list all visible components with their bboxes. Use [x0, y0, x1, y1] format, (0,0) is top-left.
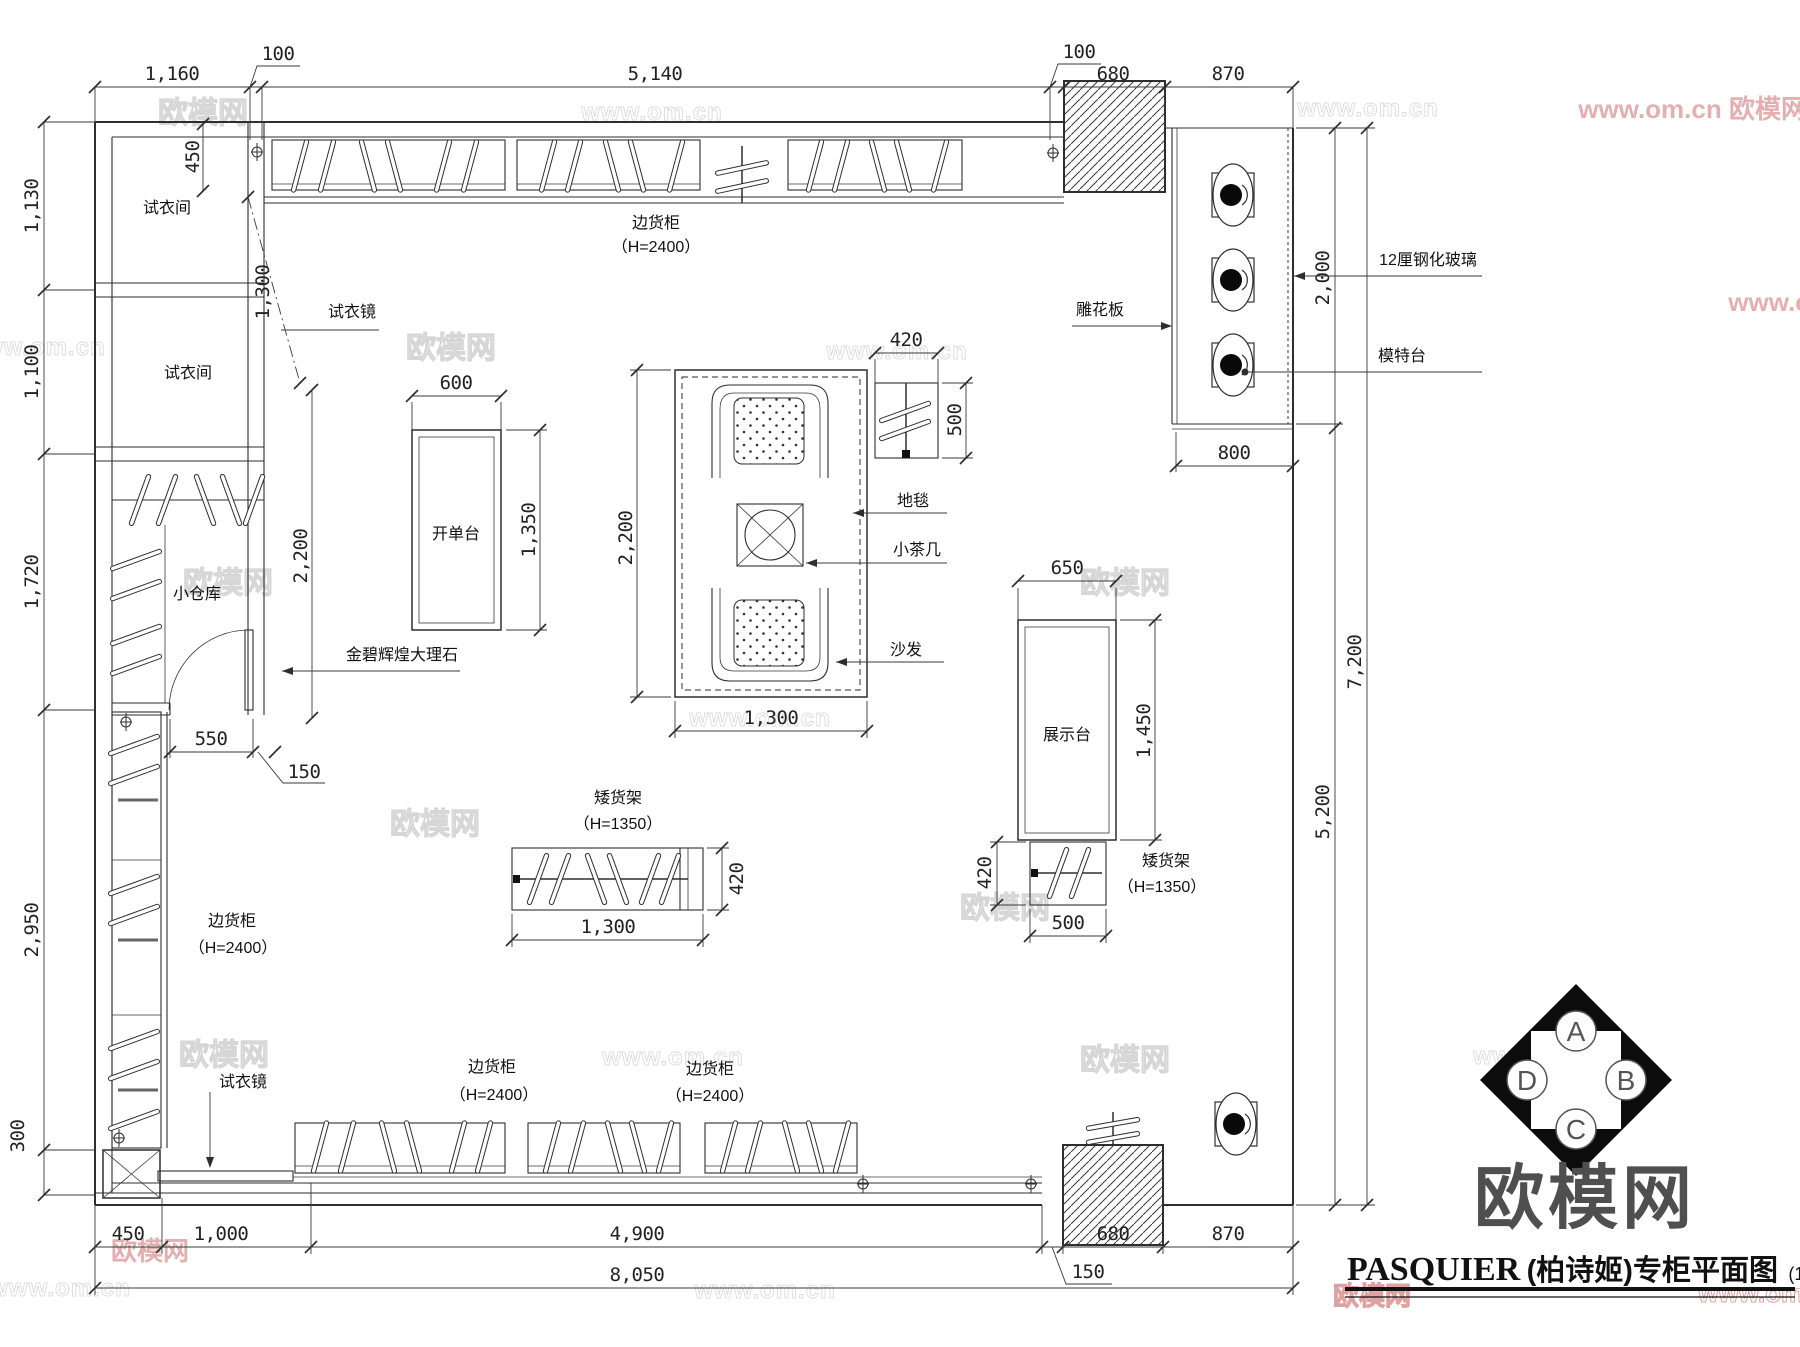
watermark-url: www.om.cn	[693, 1277, 835, 1304]
dim-800: 800	[1218, 442, 1251, 464]
dim-bottom-8050: 8,050	[610, 1264, 665, 1286]
title-brand: PASQUIER	[1347, 1251, 1521, 1288]
title-block: 欧模网 PASQUIER (柏诗姬)专柜平面图 (1:50)	[1345, 1159, 1800, 1297]
dim-500-rack: 500	[944, 404, 966, 437]
dim-left-1100: 1,100	[21, 345, 43, 400]
dim-top-5140: 5,140	[628, 63, 683, 85]
left-side-cabinet	[108, 712, 167, 1148]
low-shelf-center	[512, 848, 703, 910]
floor-plan-canvas: 欧模网 欧模网 欧模网 欧模网 欧模网 欧模网 欧模网 欧模网 www.om.c…	[0, 0, 1800, 1347]
label-carpet: 地毯	[897, 492, 929, 510]
mannequin-icon	[1215, 1093, 1257, 1155]
fitting-mirror-strip	[158, 1171, 293, 1181]
watermark-site-red: 欧模网	[1729, 94, 1800, 124]
watermark-site: 欧模网	[960, 892, 1050, 925]
dim-bottom-450: 450	[112, 1223, 145, 1245]
dim-left-2950: 2,950	[21, 903, 43, 958]
labels: 试衣间 试衣间 小仓库 试衣镜 边货柜 （H=2400） 边货柜 （H=2400…	[143, 199, 1482, 1168]
label-tempered-glass: 12厘钢化玻璃	[1379, 251, 1477, 269]
storage-door	[169, 630, 253, 710]
dimensions: 1,160 100 5,140 100 680 870 1,130 1,100 …	[7, 41, 1375, 1295]
dim-1300-carpet: 1,300	[744, 707, 799, 729]
dim-450: 450	[182, 141, 204, 174]
title-underline-thick	[1345, 1287, 1795, 1291]
site-logo: 欧模网	[1474, 1159, 1696, 1237]
dim-bottom-680: 680	[1097, 1223, 1130, 1245]
dim-2200-sofa: 2,200	[615, 511, 637, 566]
dim-right-7200: 7,200	[1344, 635, 1366, 690]
watermark-url: www.om.cn	[0, 334, 106, 361]
dim-right-5200: 5,200	[1312, 785, 1334, 840]
hanger-bars-icon	[291, 139, 949, 192]
compass-c: C	[1566, 1114, 1586, 1145]
dim-420-center: 420	[726, 863, 748, 896]
dim-420-right: 420	[974, 857, 996, 890]
title-name: (柏诗姬)专柜平面图	[1527, 1254, 1778, 1287]
dim-bottom-870: 870	[1212, 1223, 1245, 1245]
label-display-stand: 展示台	[1043, 726, 1091, 744]
label-low-shelf-right: 矮货架	[1142, 852, 1190, 870]
dim-top-100b: 100	[1063, 41, 1096, 63]
label-bottom-cabinet-1: 边货柜	[468, 1058, 516, 1076]
dim-right-2000: 2,000	[1312, 251, 1334, 306]
label-fitting-mirror-top: 试衣镜	[328, 302, 376, 321]
free-hanger-icon	[715, 146, 769, 203]
watermark-url-red: www.om.cn	[1577, 94, 1722, 124]
compass-b: B	[1617, 1065, 1636, 1096]
dim-bottom-1000: 1,000	[194, 1223, 249, 1245]
sofa-bottom	[712, 588, 828, 681]
dim-left-1720: 1,720	[21, 555, 43, 610]
title-scale: (1:50)	[1788, 1264, 1800, 1284]
label-left-cabinet: 边货柜	[208, 912, 256, 930]
walls	[95, 122, 1293, 1205]
label-fitting-room-2: 试衣间	[164, 364, 212, 382]
top-side-cabinet	[264, 139, 1064, 203]
tea-table	[737, 504, 803, 566]
mannequin-icon	[1212, 164, 1254, 226]
dim-550: 550	[195, 728, 228, 750]
dim-bottom-150: 150	[1072, 1261, 1105, 1283]
label-left-cabinet-h: （H=2400）	[189, 939, 278, 957]
dim-150: 150	[288, 761, 321, 783]
dim-1350: 1,350	[518, 503, 540, 558]
label-model-stand: 模特台	[1378, 347, 1426, 365]
watermark-site: 欧模网	[390, 808, 480, 841]
watermark-site: 欧模网	[1080, 1044, 1170, 1077]
dim-top-870: 870	[1212, 63, 1245, 85]
label-low-shelf-center: 矮货架	[594, 789, 642, 807]
label-fitting-room-1: 试衣间	[143, 199, 191, 217]
bottom-side-cabinet	[103, 1120, 1042, 1198]
dim-top-100: 100	[262, 43, 295, 65]
label-order-desk: 开单台	[432, 525, 480, 543]
label-sofa: 沙发	[890, 641, 922, 659]
watermark-url: www.om.cn	[1296, 95, 1438, 122]
label-top-cabinet: 边货柜	[632, 214, 680, 232]
label-tea-table: 小茶几	[893, 541, 941, 559]
label-low-shelf-right-h: （H=1350）	[1118, 878, 1207, 896]
compass-a: A	[1567, 1016, 1586, 1047]
label-bottom-cabinet-2: 边货柜	[686, 1060, 734, 1078]
dim-bottom-4900: 4,900	[610, 1223, 665, 1245]
label-marble: 金碧辉煌大理石	[346, 646, 458, 664]
dim-top-1160: 1,160	[145, 63, 200, 85]
dim-500-right: 500	[1052, 912, 1085, 934]
mannequin-icon	[1212, 249, 1254, 311]
dim-mirror-1300: 1,300	[252, 265, 274, 320]
label-bottom-cabinet-1-h: （H=2400）	[450, 1086, 539, 1104]
dim-2200-left: 2,200	[290, 529, 312, 584]
dim-top-680: 680	[1097, 63, 1130, 85]
dim-left-300: 300	[7, 1120, 29, 1153]
entry-column-top	[1064, 81, 1165, 192]
rack-420x500	[875, 383, 938, 458]
label-carved-panel: 雕花板	[1076, 301, 1124, 319]
dim-1300-shelf: 1,300	[581, 916, 636, 938]
sofa-set	[675, 370, 867, 697]
watermark-site: 欧模网	[179, 1039, 269, 1072]
watermark-url-red: www.om.cn	[1727, 287, 1800, 317]
label-small-storage: 小仓库	[173, 585, 221, 603]
watermark-url: www.om.cn	[0, 1275, 131, 1302]
dim-600: 600	[440, 372, 473, 394]
watermark-site: 欧模网	[1080, 567, 1170, 600]
dim-650: 650	[1051, 557, 1084, 579]
dim-left-1130: 1,130	[21, 179, 43, 234]
sofa-top	[712, 385, 828, 478]
dim-1450: 1,450	[1133, 704, 1155, 759]
label-bottom-cabinet-2-h: （H=2400）	[666, 1087, 755, 1105]
mannequin-platform	[1172, 128, 1293, 429]
mannequin-icon	[1212, 334, 1254, 396]
label-fitting-mirror-bottom: 试衣镜	[219, 1072, 267, 1091]
north-compass: A B C D	[1480, 984, 1672, 1176]
drawing-title: PASQUIER (柏诗姬)专柜平面图 (1:50)	[1347, 1251, 1800, 1288]
label-low-shelf-center-h: （H=1350）	[574, 815, 663, 833]
label-top-cabinet-h: （H=2400）	[612, 238, 701, 256]
watermark-site: 欧模网	[406, 332, 496, 365]
dim-420-rack: 420	[890, 329, 923, 351]
compass-d: D	[1517, 1065, 1537, 1096]
